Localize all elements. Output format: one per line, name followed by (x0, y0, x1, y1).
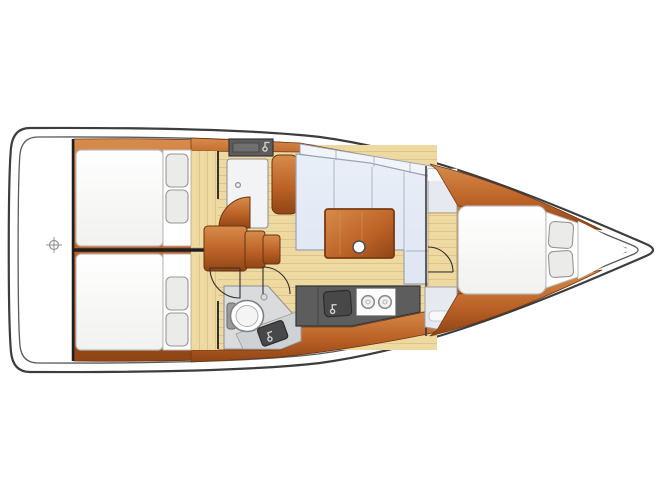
pillow (166, 190, 188, 223)
step (245, 231, 265, 268)
pillow (166, 154, 188, 187)
pillow (166, 313, 188, 346)
forward-cabin-floor (428, 213, 457, 287)
pillow (548, 250, 574, 278)
floorplan-canvas (0, 0, 667, 500)
galley-sink (323, 290, 352, 317)
wardrobe-cabinet (272, 155, 298, 214)
burner-icon (379, 296, 392, 309)
burner-icon (362, 296, 375, 309)
step (204, 226, 247, 271)
table-pedestal-icon (353, 241, 365, 253)
salon-table (325, 209, 394, 258)
double-berth-mattress (76, 150, 163, 246)
vanity-sink-basin (233, 143, 259, 152)
v-berth-mattress (458, 206, 546, 294)
stove (356, 288, 396, 316)
step (263, 235, 280, 264)
pillow (548, 221, 574, 249)
aft-cabin-top (76, 150, 218, 246)
pillow (166, 277, 188, 310)
boat-floorplan (0, 0, 667, 500)
aft-cabin-bottom (76, 254, 218, 350)
toilet-bowl (236, 306, 258, 327)
double-berth-mattress (76, 254, 163, 350)
